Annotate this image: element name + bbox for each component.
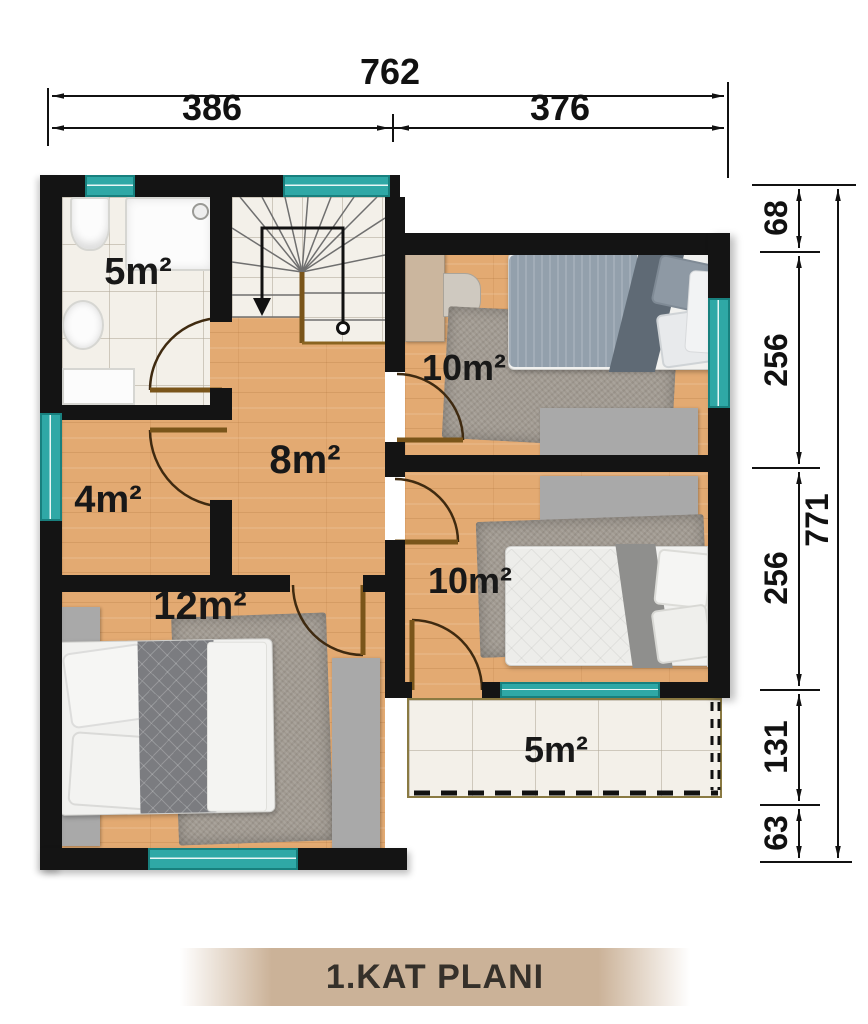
page-title: 1.KAT PLANI [326, 958, 544, 997]
floor-plan-page: 5m² 10m² 8m² 4m² 12m² 10m² 5m² [0, 0, 868, 1024]
dim-total-width: 762 [360, 54, 420, 90]
dimension-lines [0, 0, 868, 1024]
dim-right-seg-131: 131 [760, 720, 792, 773]
title-banner: 1.KAT PLANI [180, 948, 690, 1006]
dim-right-seg-256b: 256 [760, 551, 792, 604]
dim-right-seg-68: 68 [760, 200, 792, 236]
dim-right-seg-256a: 256 [760, 333, 792, 386]
dim-right-seg-63: 63 [760, 815, 792, 851]
dim-width-right: 376 [530, 90, 590, 126]
top-dimensions [48, 82, 728, 178]
dim-total-height: 771 [801, 493, 833, 546]
dim-width-left: 386 [182, 90, 242, 126]
